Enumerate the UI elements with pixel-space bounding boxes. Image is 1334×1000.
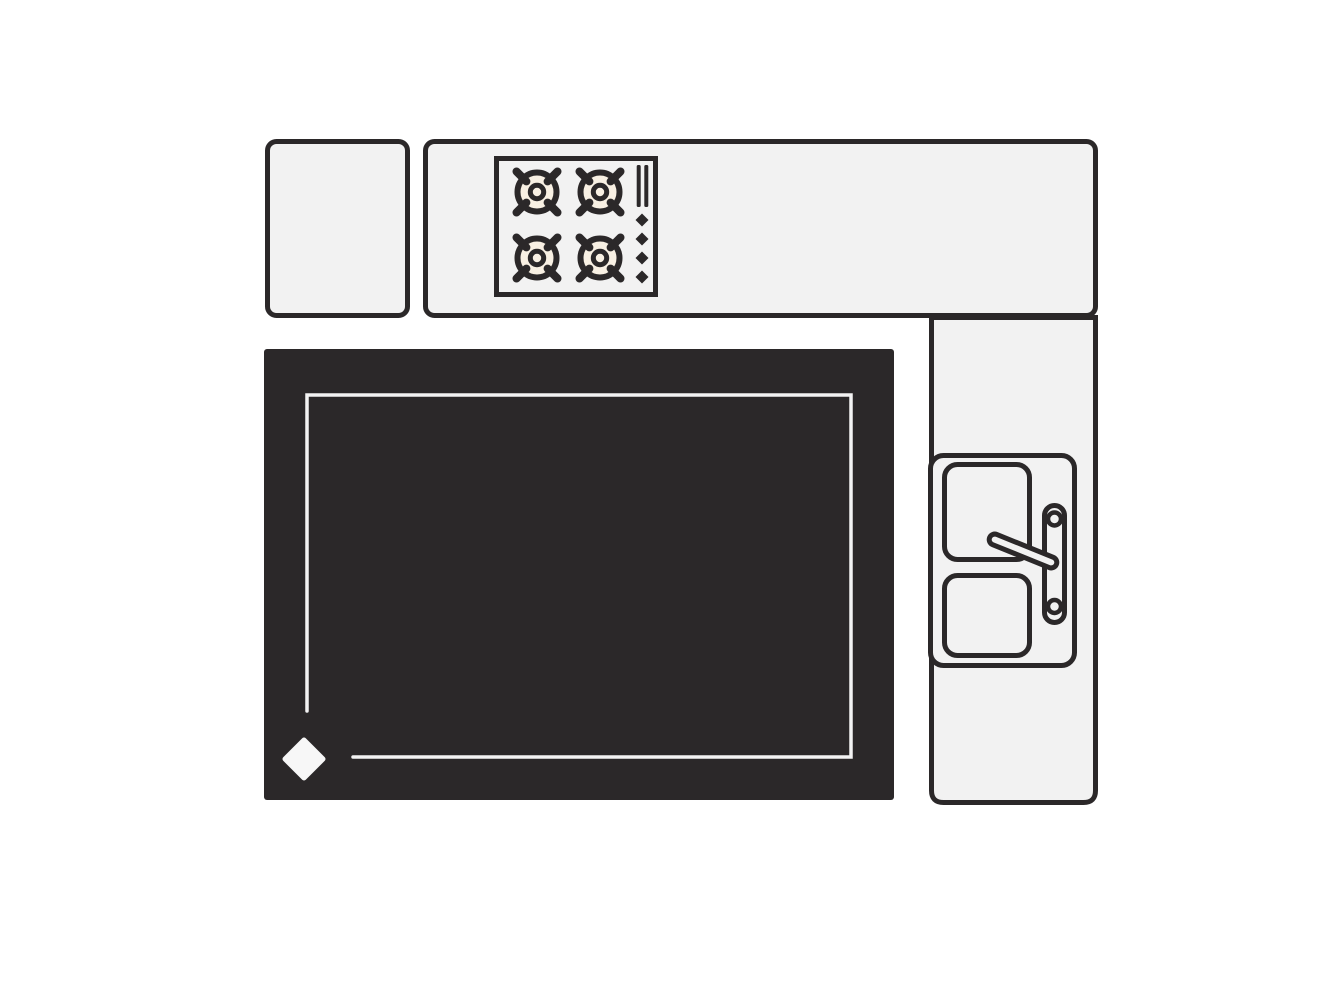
faucet-knob-bottom [1048,600,1061,613]
burner-icon [515,170,560,215]
burner-icon [515,236,560,281]
side-counter [931,318,1096,803]
burner-icon [578,236,623,281]
corner-cabinet [268,142,408,316]
sink-icon [931,456,1075,666]
sink-basin-bottom [945,576,1030,656]
upper-counter [426,142,1096,316]
island-top [264,349,894,800]
island [264,349,894,800]
cooktop-icon [497,159,656,295]
burner-icon [578,170,623,215]
floor-plan-canvas [0,0,1334,1000]
faucet-knob-top [1048,513,1061,526]
corner-cabinet-top [268,142,408,316]
